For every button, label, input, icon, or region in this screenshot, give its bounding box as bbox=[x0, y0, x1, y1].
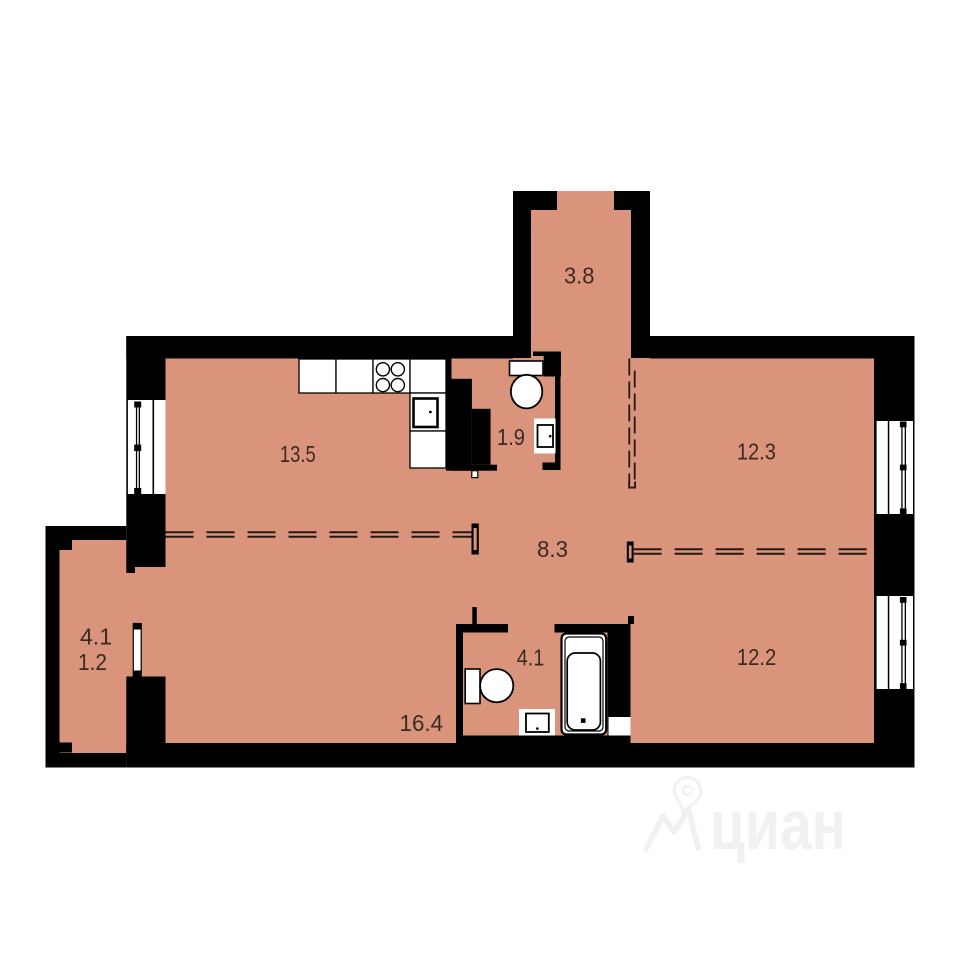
svg-text:4.1: 4.1 bbox=[80, 623, 112, 649]
svg-text:4.1: 4.1 bbox=[517, 645, 545, 671]
svg-text:8.3: 8.3 bbox=[537, 536, 568, 562]
svg-text:1.9: 1.9 bbox=[497, 424, 525, 450]
svg-text:16.4: 16.4 bbox=[400, 710, 444, 736]
svg-text:циан: циан bbox=[710, 786, 846, 864]
svg-text:12.3: 12.3 bbox=[737, 438, 776, 464]
svg-text:1.2: 1.2 bbox=[78, 649, 107, 675]
svg-text:12.2: 12.2 bbox=[737, 644, 777, 670]
svg-text:13.5: 13.5 bbox=[280, 441, 316, 467]
svg-text:3.8: 3.8 bbox=[564, 263, 595, 289]
